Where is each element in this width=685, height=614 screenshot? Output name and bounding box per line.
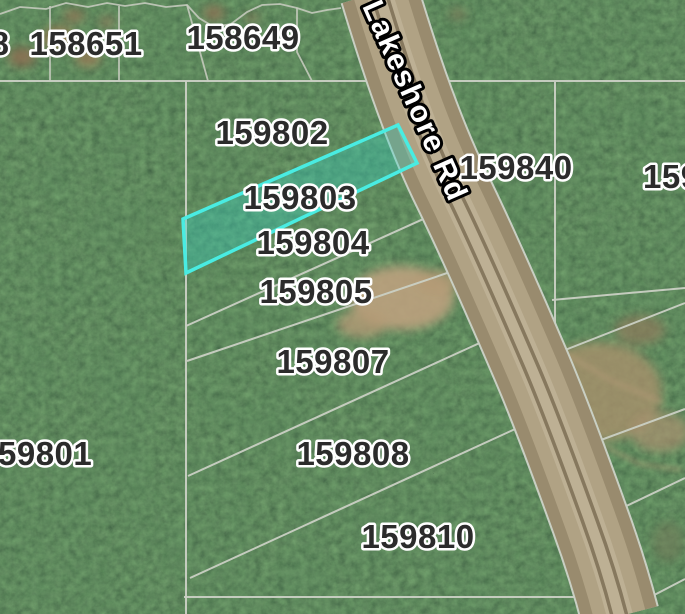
map-canvas[interactable]: 8 158651 158649 159802 159803 159804 159… [0,0,685,614]
parcel-label-159808: 159808 [296,435,409,472]
parcel-label-159802: 159802 [215,114,328,151]
parcel-label-158651: 158651 [29,25,142,62]
parcel-label-159801-partial: 59801 [0,435,92,472]
parcel-map-svg: 8 158651 158649 159802 159803 159804 159… [0,0,685,614]
parcel-label-partial-top-left: 8 [0,25,9,62]
parcel-label-158649: 158649 [186,19,299,56]
parcel-label-159807: 159807 [276,343,389,380]
parcel-label-159805: 159805 [259,273,372,310]
parcel-label-partial-right: 159 [643,158,685,195]
parcel-label-159810: 159810 [361,518,474,555]
parcel-label-159803: 159803 [243,179,356,216]
parcel-label-159804: 159804 [256,224,369,261]
parcel-label-159840: 159840 [459,149,572,186]
